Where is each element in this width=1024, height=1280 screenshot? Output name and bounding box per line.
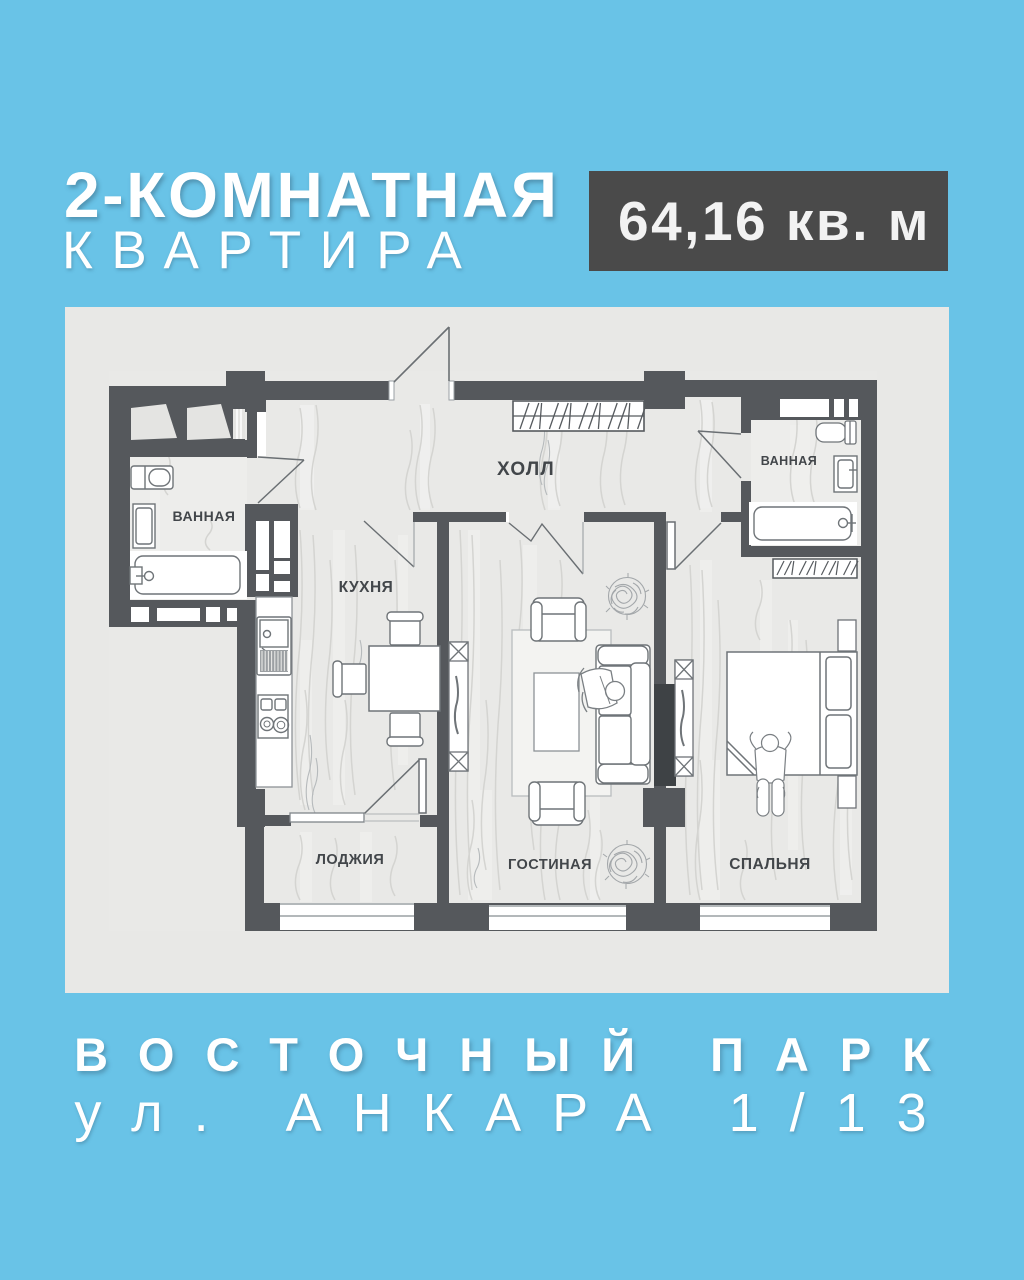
svg-text:КУХНЯ: КУХНЯ [339,579,394,596]
svg-text:СПАЛЬНЯ: СПАЛЬНЯ [729,856,811,873]
svg-text:ХОЛЛ: ХОЛЛ [497,459,555,480]
svg-text:ВАННАЯ: ВАННАЯ [761,454,818,468]
svg-text:ВАННАЯ: ВАННАЯ [173,508,236,524]
svg-text:ГОСТИНАЯ: ГОСТИНАЯ [508,857,592,873]
svg-text:ЛОДЖИЯ: ЛОДЖИЯ [316,852,385,868]
